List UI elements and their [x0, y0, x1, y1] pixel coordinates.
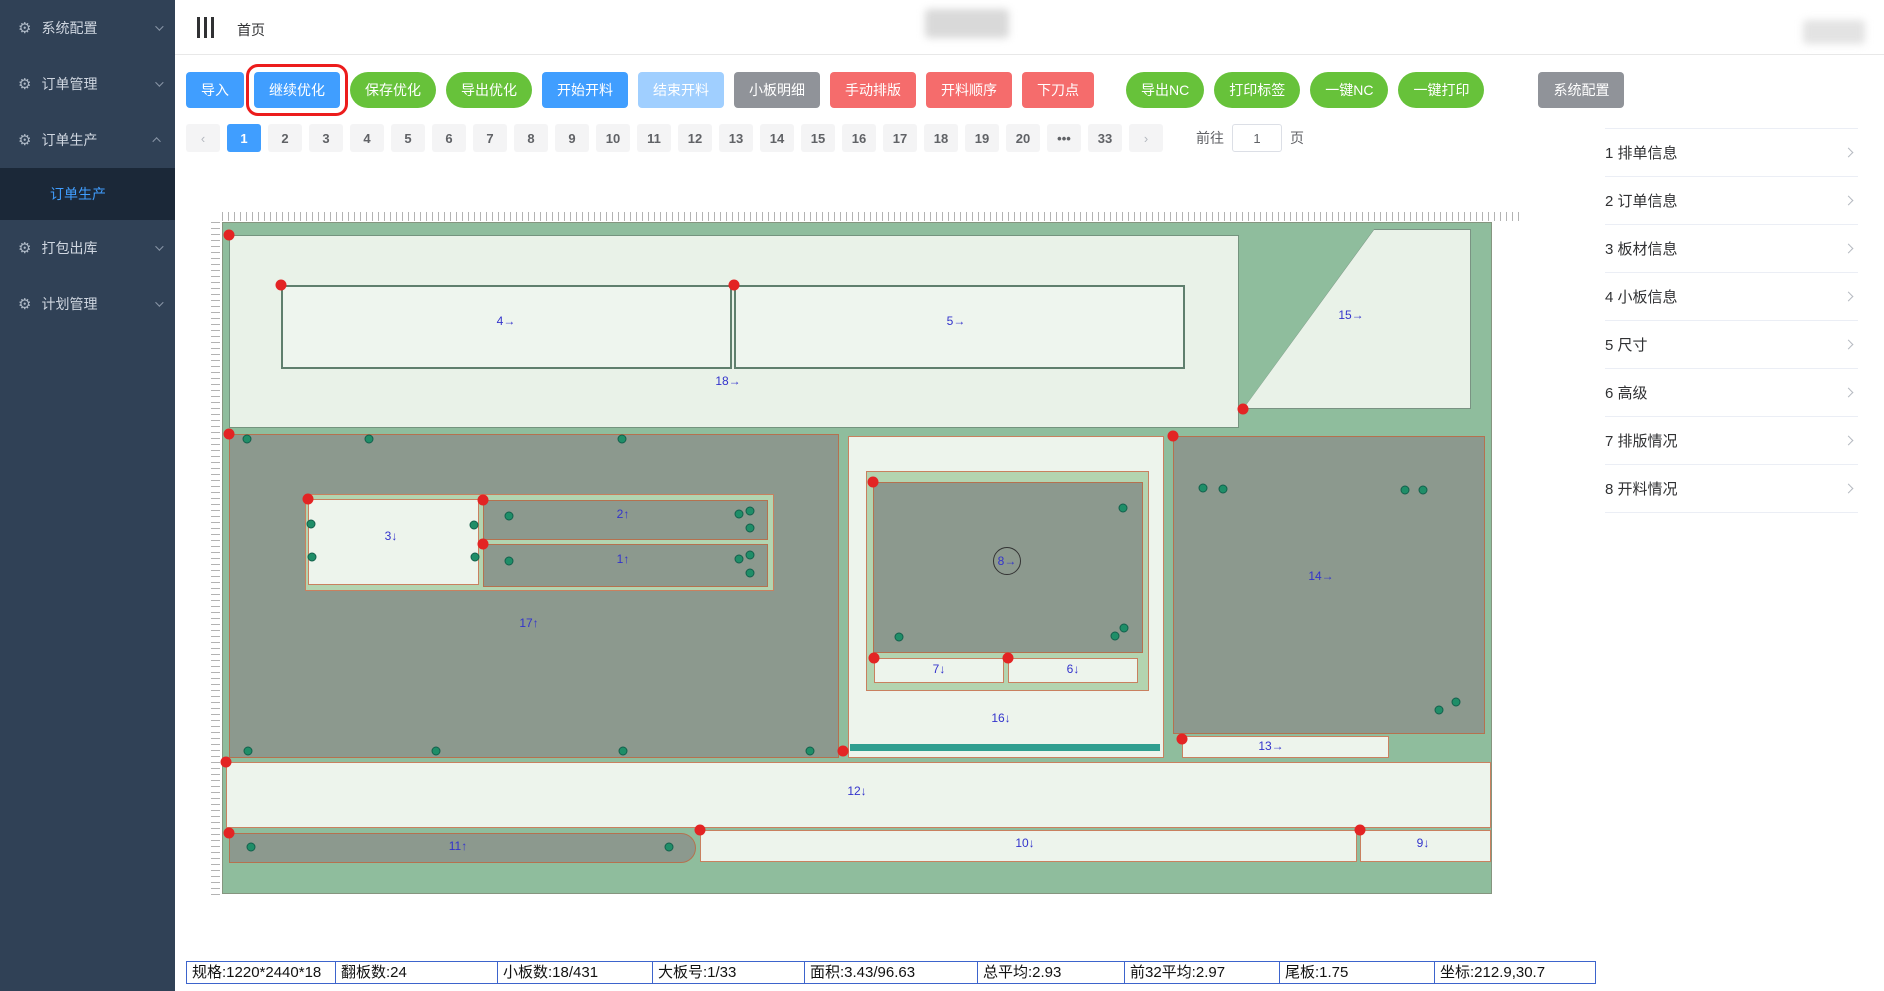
accordion-item-label: 5 尺寸: [1605, 334, 1648, 355]
piece-label: 11↑: [449, 839, 467, 853]
sidebar: ⚙系统配置⚙订单管理⚙订单生产订单生产⚙打包出库⚙计划管理: [0, 0, 175, 991]
sidebar-submenu: 订单生产: [0, 168, 175, 220]
gear-icon: ⚙: [18, 75, 31, 93]
page-button-17[interactable]: 17: [883, 124, 917, 152]
gear-icon: ⚙: [18, 239, 31, 257]
toolbar-button-导出NC[interactable]: 导出NC: [1126, 72, 1204, 108]
piece-label: 12↓: [847, 784, 866, 798]
status-cell: 坐标:212.9,30.7: [1434, 961, 1596, 984]
toolbar-button-打印标签[interactable]: 打印标签: [1214, 72, 1300, 108]
page-button-18[interactable]: 18: [924, 124, 958, 152]
page-button-10[interactable]: 10: [596, 124, 630, 152]
page-button-19[interactable]: 19: [965, 124, 999, 152]
origin-point-dot: [1355, 825, 1366, 836]
page-button-11[interactable]: 11: [637, 124, 671, 152]
toolbar-button-下刀点[interactable]: 下刀点: [1022, 72, 1094, 108]
origin-point-dot: [838, 746, 849, 757]
page-button-3[interactable]: 3: [309, 124, 343, 152]
chevron-right-icon: [1844, 388, 1854, 398]
sidebar-item-3[interactable]: ⚙订单生产: [0, 112, 175, 168]
page-jump-input[interactable]: [1232, 124, 1282, 152]
status-cell: 翻板数:24: [335, 961, 498, 984]
drill-hole-dot: [307, 520, 316, 529]
drill-hole-dot: [1111, 632, 1120, 641]
drill-hole-dot: [619, 747, 628, 756]
sidebar-item-1[interactable]: ⚙系统配置: [0, 0, 175, 56]
drill-hole-dot: [746, 524, 755, 533]
piece-label: 2↑: [617, 507, 630, 521]
breadcrumb: 首页: [237, 20, 265, 40]
accordion-item-label: 7 排版情况: [1605, 430, 1678, 451]
piece-label: 4→: [497, 314, 516, 328]
status-cell: 小板数:18/431: [497, 961, 653, 984]
origin-point-dot: [868, 477, 879, 488]
drill-hole-dot: [1199, 484, 1208, 493]
chevron-right-icon: [1844, 244, 1854, 254]
page-button-2[interactable]: 2: [268, 124, 302, 152]
page-jump-label: 前往: [1196, 128, 1224, 148]
blurred-logo: [925, 9, 1009, 38]
page-button-7[interactable]: 7: [473, 124, 507, 152]
accordion-item-label: 8 开料情况: [1605, 478, 1678, 499]
accordion-item-2[interactable]: 2 订单信息: [1605, 177, 1858, 225]
page-ellipsis-button[interactable]: •••: [1047, 124, 1081, 152]
piece-label: 3↓: [385, 529, 398, 543]
origin-point-dot: [1003, 653, 1014, 664]
status-cell: 总平均:2.93: [977, 961, 1125, 984]
chevron-down-icon: [155, 242, 163, 250]
toolbar-button-手动排版[interactable]: 手动排版: [830, 72, 916, 108]
drill-hole-dot: [1219, 485, 1228, 494]
piece-label: 7↓: [933, 662, 946, 676]
piece-label: 14→: [1308, 569, 1333, 583]
sidebar-item-2[interactable]: ⚙订单管理: [0, 56, 175, 112]
drill-hole-dot: [243, 435, 252, 444]
sidebar-item-label: 计划管理: [41, 294, 155, 314]
page-jump: 前往页: [1196, 124, 1304, 152]
piece-label: 9↓: [1417, 836, 1430, 850]
drill-hole-dot: [1120, 624, 1129, 633]
drill-hole-dot: [505, 557, 514, 566]
origin-point-dot: [869, 653, 880, 664]
page-jump-suffix: 页: [1290, 128, 1304, 148]
drill-hole-dot: [895, 633, 904, 642]
piece-label: 15→: [1338, 308, 1363, 322]
toolbar-button-结束开料: 结束开料: [638, 72, 724, 108]
drill-hole-dot: [665, 843, 674, 852]
toolbar-button-导入[interactable]: 导入: [186, 72, 244, 108]
drill-hole-dot: [1419, 486, 1428, 495]
sidebar-item-label: 系统配置: [41, 18, 155, 38]
status-cell: 前32平均:2.97: [1124, 961, 1280, 984]
piece-label: 16↓: [991, 711, 1010, 725]
page-button-9[interactable]: 9: [555, 124, 589, 152]
toolbar-button-开料顺序[interactable]: 开料顺序: [926, 72, 1012, 108]
ruler-horizontal: [222, 212, 1524, 221]
origin-point-dot: [303, 494, 314, 505]
chevron-right-icon: [1844, 292, 1854, 302]
accordion-item-8[interactable]: 8 开料情况: [1605, 465, 1858, 513]
accordion-item-label: 6 高级: [1605, 382, 1648, 403]
page-button-13[interactable]: 13: [719, 124, 753, 152]
accordion-item-label: 3 板材信息: [1605, 238, 1678, 259]
page-button-20[interactable]: 20: [1006, 124, 1040, 152]
piece-label: 6↓: [1067, 662, 1080, 676]
drill-hole-dot: [735, 510, 744, 519]
status-cell: 大板号:1/33: [652, 961, 805, 984]
drill-hole-dot: [505, 512, 514, 521]
piece-14[interactable]: [1173, 436, 1485, 734]
page-button-14[interactable]: 14: [760, 124, 794, 152]
toolbar-button-小板明细[interactable]: 小板明细: [734, 72, 820, 108]
chevron-right-icon: [1844, 340, 1854, 350]
piece-label: 10↓: [1015, 836, 1034, 850]
page-button-5[interactable]: 5: [391, 124, 425, 152]
blurred-user-area: [1803, 20, 1865, 44]
chevron-right-icon: [1844, 484, 1854, 494]
page-button-6[interactable]: 6: [432, 124, 466, 152]
page-button-8[interactable]: 8: [514, 124, 548, 152]
origin-point-dot: [221, 757, 232, 768]
gear-icon: ⚙: [18, 19, 31, 37]
page-button-1[interactable]: 1: [227, 124, 261, 152]
page-prev-button[interactable]: ‹: [186, 124, 220, 152]
accordion-item-3[interactable]: 3 板材信息: [1605, 225, 1858, 273]
settings-accordion: 1 排单信息2 订单信息3 板材信息4 小板信息5 尺寸6 高级7 排版情况8 …: [1605, 128, 1858, 513]
origin-point-dot: [695, 825, 706, 836]
accordion-item-label: 4 小板信息: [1605, 286, 1678, 307]
status-cell: 规格:1220*2440*18: [186, 961, 336, 984]
origin-point-dot: [1238, 404, 1249, 415]
piece-label: 5→: [947, 314, 966, 328]
accordion-item-7[interactable]: 7 排版情况: [1605, 417, 1858, 465]
piece-17[interactable]: [229, 434, 839, 758]
origin-point-dot: [224, 828, 235, 839]
accordion-item-6[interactable]: 6 高级: [1605, 369, 1858, 417]
status-cell: 尾板:1.75: [1279, 961, 1435, 984]
origin-point-dot: [224, 429, 235, 440]
accordion-item-4[interactable]: 4 小板信息: [1605, 273, 1858, 321]
status-cell: 面积:3.43/96.63: [804, 961, 978, 984]
piece-label: 17↑: [519, 616, 538, 630]
page-next-button[interactable]: ›: [1129, 124, 1163, 152]
origin-point-dot: [276, 280, 287, 291]
drill-hole-dot: [1435, 706, 1444, 715]
page-button-12[interactable]: 12: [678, 124, 712, 152]
toolbar-button-保存优化[interactable]: 保存优化: [350, 72, 436, 108]
sidebar-item-label: 打包出库: [41, 238, 155, 258]
chevron-down-icon: [155, 22, 163, 30]
toolbar: 导入继续优化保存优化导出优化开始开料结束开料小板明细手动排版开料顺序下刀点导出N…: [186, 70, 1634, 110]
chevron-down-icon: [155, 78, 163, 86]
pagination: ‹1234567891011121314151617181920•••33›前往…: [186, 124, 1304, 152]
drill-hole-dot: [746, 569, 755, 578]
accordion-item-5[interactable]: 5 尺寸: [1605, 321, 1858, 369]
toolbar-button-一键NC[interactable]: 一键NC: [1310, 72, 1388, 108]
origin-point-dot: [224, 230, 235, 241]
chevron-right-icon: [1844, 436, 1854, 446]
sidebar-item-5[interactable]: ⚙计划管理: [0, 276, 175, 332]
origin-point-dot: [478, 495, 489, 506]
accordion-item-1[interactable]: 1 排单信息: [1605, 129, 1858, 177]
drill-hole-dot: [432, 747, 441, 756]
drill-hole-dot: [470, 521, 479, 530]
cutting-layout-canvas[interactable]: 18→4→5→15→17↑3↓2↑1↑16↓8→7↓6↓14→13→12↓11↑…: [222, 222, 1492, 894]
toolbar-button-导出优化[interactable]: 导出优化: [446, 72, 532, 108]
piece-label: 18→: [715, 374, 740, 388]
sidebar-item-label: 订单管理: [41, 74, 155, 94]
origin-point-dot: [1168, 431, 1179, 442]
sidebar-item-label: 订单生产: [41, 130, 155, 150]
toolbar-button-系统配置[interactable]: 系统配置: [1538, 72, 1624, 108]
toolbar-button-一键打印[interactable]: 一键打印: [1398, 72, 1484, 108]
sidebar-item-4[interactable]: ⚙打包出库: [0, 220, 175, 276]
origin-point-dot: [478, 539, 489, 550]
drill-hole-dot: [1452, 698, 1461, 707]
toolbar-button-开始开料[interactable]: 开始开料: [542, 72, 628, 108]
drill-hole-dot: [1401, 486, 1410, 495]
chevron-right-icon: [1844, 148, 1854, 158]
piece-label: 13→: [1258, 739, 1283, 753]
drill-hole-dot: [735, 555, 744, 564]
drill-hole-dot: [247, 843, 256, 852]
gear-icon: ⚙: [18, 295, 31, 313]
gear-icon: ⚙: [18, 131, 31, 149]
drill-hole-dot: [618, 435, 627, 444]
chevron-down-icon: [155, 298, 163, 306]
drill-hole-dot: [365, 435, 374, 444]
drill-hole-dot: [746, 551, 755, 560]
cut-strip: [850, 744, 1160, 751]
drill-hole-dot: [746, 507, 755, 516]
page-button-4[interactable]: 4: [350, 124, 384, 152]
collapse-menu-icon[interactable]: [197, 17, 214, 38]
toolbar-button-继续优化[interactable]: 继续优化: [254, 72, 340, 108]
piece-label: 1↑: [617, 552, 630, 566]
drill-hole-dot: [244, 747, 253, 756]
drill-hole-dot: [471, 553, 480, 562]
sidebar-subitem[interactable]: 订单生产: [0, 168, 175, 220]
ruler-vertical: [211, 222, 220, 898]
drill-hole-dot: [308, 553, 317, 562]
accordion-item-label: 1 排单信息: [1605, 142, 1678, 163]
drill-hole-dot: [1119, 504, 1128, 513]
status-bar: 规格:1220*2440*18翻板数:24小板数:18/431大板号:1/33面…: [186, 961, 1596, 984]
drill-hole-dot: [806, 747, 815, 756]
origin-point-dot: [1177, 734, 1188, 745]
chevron-right-icon: [1844, 196, 1854, 206]
origin-point-dot: [729, 280, 740, 291]
piece-13[interactable]: [1182, 736, 1389, 758]
page-button-33[interactable]: 33: [1088, 124, 1122, 152]
piece-label: 8→: [993, 547, 1021, 575]
page-button-15[interactable]: 15: [801, 124, 835, 152]
page-button-16[interactable]: 16: [842, 124, 876, 152]
accordion-item-label: 2 订单信息: [1605, 190, 1678, 211]
header: 首页: [175, 0, 1884, 55]
